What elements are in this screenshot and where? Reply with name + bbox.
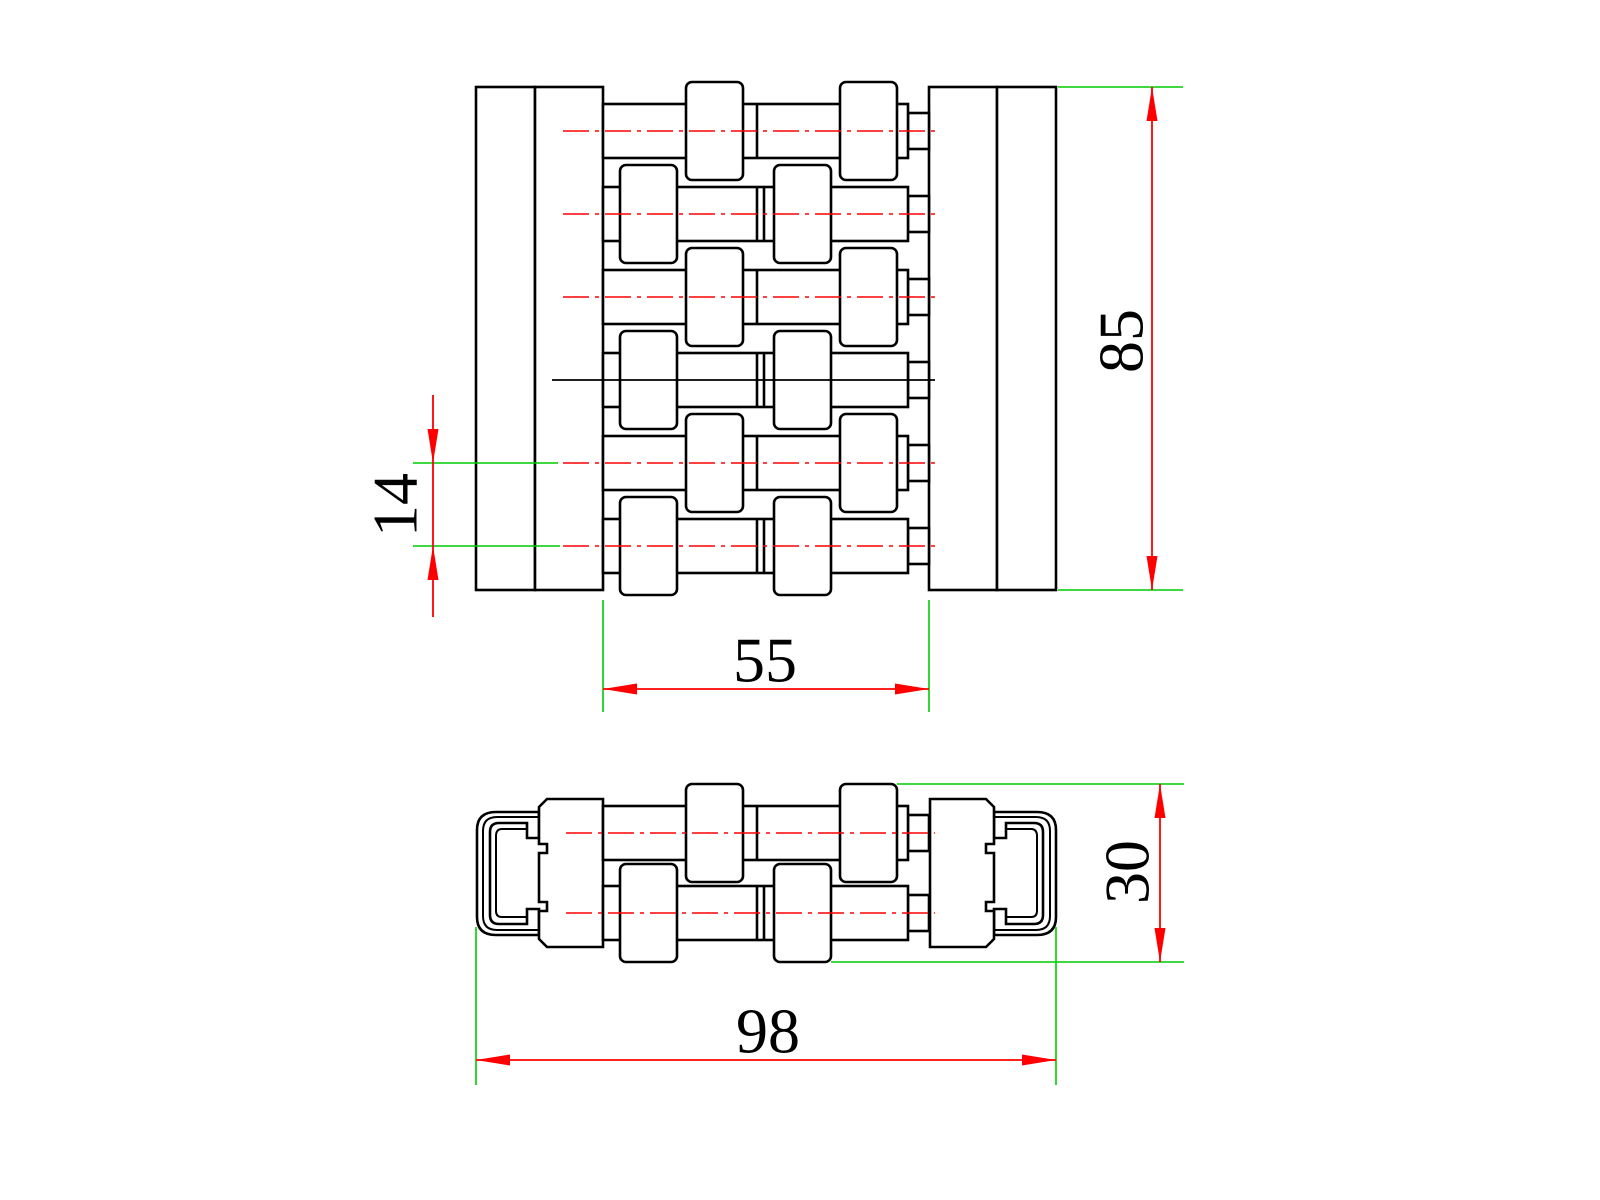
arrow-up-icon [1147,87,1158,121]
dim-85-label: 85 [1085,309,1156,373]
front-left-assembly [477,799,603,947]
top-left-outer-plate [476,87,535,590]
arrow-up-icon [1155,784,1166,818]
dimension-55: 55 [603,600,929,712]
dim-14-label: 14 [359,473,430,537]
arrow-up-icon [428,546,439,580]
top-view [476,82,1056,595]
top-left-inner-plate [535,87,603,590]
clip-inner-edge [496,829,527,917]
arrow-right-icon [1022,1055,1056,1066]
front-side-plate [539,799,603,947]
top-right-outer-plate [997,87,1056,590]
arrow-down-icon [1155,928,1166,962]
arrow-down-icon [1147,556,1158,590]
cad-drawing: 85 14 55 30 98 [0,0,1600,1200]
top-right-inner-plate [929,87,997,590]
drawing-canvas: 85 14 55 30 98 [0,0,1600,1200]
arrow-right-icon [895,684,929,695]
front-right-assembly [930,799,1056,947]
arrow-left-icon [603,684,637,695]
dimension-98: 98 [476,927,1056,1085]
dim-98-label: 98 [736,995,800,1066]
arrow-down-icon [428,429,439,463]
arrow-left-icon [476,1055,510,1066]
dim-30-label: 30 [1091,840,1162,904]
front-view [477,784,1056,962]
dimension-85: 85 [1058,87,1183,590]
dim-55-label: 55 [733,624,797,695]
